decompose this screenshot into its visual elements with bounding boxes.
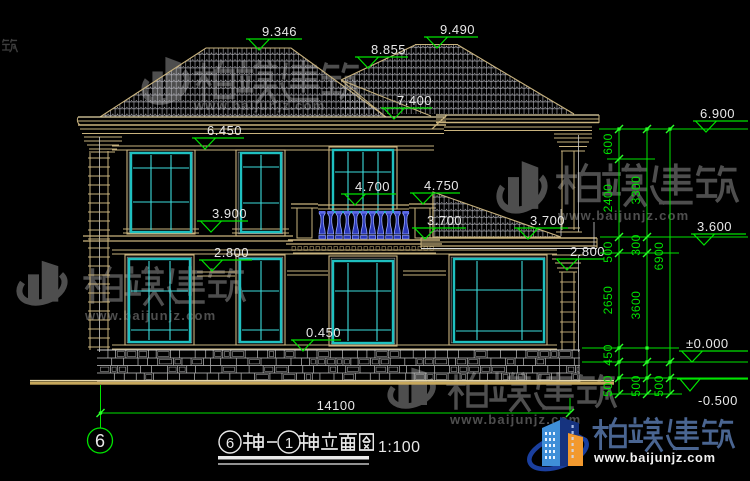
svg-text:6.450: 6.450 — [207, 123, 242, 138]
svg-text:9.346: 9.346 — [262, 24, 297, 39]
svg-text:2.800: 2.800 — [214, 245, 249, 260]
svg-text:14100: 14100 — [317, 398, 356, 413]
svg-text:450: 450 — [601, 344, 615, 366]
svg-text:www.baijunjz.com: www.baijunjz.com — [593, 450, 716, 465]
svg-text:1: 1 — [285, 435, 293, 452]
svg-text:0.450: 0.450 — [306, 325, 341, 340]
svg-text:3.900: 3.900 — [212, 206, 247, 221]
svg-text:3.600: 3.600 — [697, 219, 732, 234]
svg-text:500: 500 — [601, 241, 615, 263]
svg-text:2.800: 2.800 — [570, 244, 605, 259]
svg-text:6900: 6900 — [652, 242, 666, 271]
svg-text:6.900: 6.900 — [700, 106, 735, 121]
svg-text:4.750: 4.750 — [424, 178, 459, 193]
svg-text:3600: 3600 — [629, 291, 643, 320]
svg-text:600: 600 — [601, 133, 615, 155]
svg-text:7.400: 7.400 — [397, 93, 432, 108]
svg-text:500: 500 — [652, 375, 666, 397]
svg-text:3.700: 3.700 — [530, 213, 565, 228]
svg-text:2650: 2650 — [601, 286, 615, 315]
svg-text:6: 6 — [95, 431, 105, 451]
svg-text:300: 300 — [629, 234, 643, 256]
svg-text:1:100: 1:100 — [378, 439, 421, 456]
svg-text:6: 6 — [226, 435, 234, 452]
svg-text:3300: 3300 — [629, 176, 643, 205]
svg-text:8.855: 8.855 — [371, 42, 406, 57]
svg-text:500: 500 — [601, 375, 615, 397]
svg-text:9.490: 9.490 — [440, 22, 475, 37]
svg-text:500: 500 — [629, 375, 643, 397]
svg-text:±0.000: ±0.000 — [686, 336, 729, 351]
svg-text:-0.500: -0.500 — [698, 393, 738, 408]
svg-text:3.700: 3.700 — [427, 213, 462, 228]
svg-text:www.baijunjz.com: www.baijunjz.com — [84, 308, 216, 323]
svg-text:2400: 2400 — [601, 184, 615, 213]
svg-text:4.700: 4.700 — [355, 179, 390, 194]
